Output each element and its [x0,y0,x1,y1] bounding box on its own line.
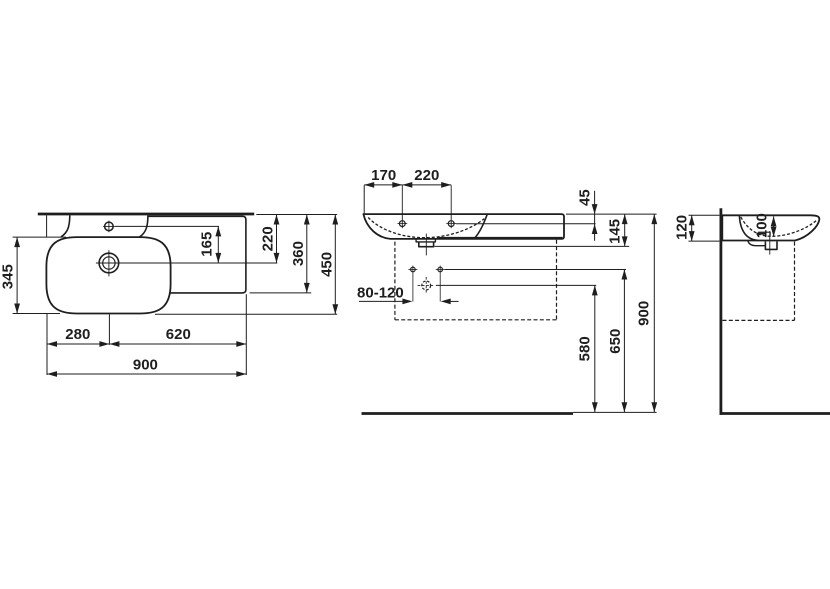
svg-text:360: 360 [290,241,307,266]
svg-text:450: 450 [319,252,336,277]
svg-text:900: 900 [636,301,653,326]
svg-text:145: 145 [607,219,624,244]
svg-text:620: 620 [166,326,191,343]
svg-text:165: 165 [199,232,216,257]
svg-text:100: 100 [753,213,770,238]
svg-text:650: 650 [607,329,624,354]
svg-text:580: 580 [576,336,593,361]
svg-text:900: 900 [133,356,158,373]
svg-text:120: 120 [674,215,691,240]
svg-text:170: 170 [371,167,396,184]
svg-text:280: 280 [65,326,90,343]
svg-text:45: 45 [576,189,593,206]
svg-text:345: 345 [0,264,17,289]
svg-text:220: 220 [260,226,277,251]
svg-text:80-120: 80-120 [357,284,404,301]
svg-text:220: 220 [414,167,439,184]
